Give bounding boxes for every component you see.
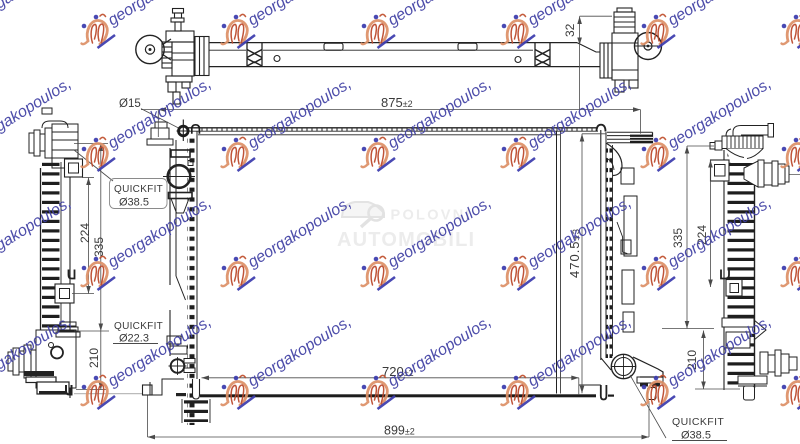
svg-text:QUICKFIT: QUICKFIT <box>114 321 163 332</box>
svg-text:335: 335 <box>92 237 106 257</box>
svg-text:Ø22.3: Ø22.3 <box>119 333 149 345</box>
svg-text:899±2: 899±2 <box>384 424 415 438</box>
svg-text:210: 210 <box>87 348 101 368</box>
svg-text:QUICKFIT: QUICKFIT <box>672 416 724 428</box>
svg-text:Ø38.5: Ø38.5 <box>681 430 711 442</box>
svg-text:Ø38.5: Ø38.5 <box>119 197 149 209</box>
svg-text:Ø15: Ø15 <box>119 98 141 110</box>
svg-text:QUICKFIT: QUICKFIT <box>114 184 163 195</box>
svg-text:32: 32 <box>563 23 577 37</box>
svg-text:224: 224 <box>78 223 92 243</box>
